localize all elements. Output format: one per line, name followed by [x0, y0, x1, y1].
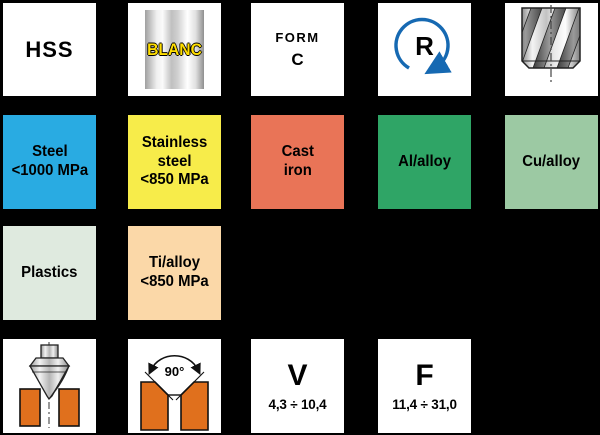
tile-plastics: Plastics [3, 226, 96, 320]
cast-iron-line2: iron [281, 162, 313, 181]
tile-countersinking [3, 339, 96, 433]
tile-rotation-direction: R [378, 3, 471, 96]
stainless-line2: steel [140, 153, 208, 172]
ti-alloy-label: Ti/alloy <850 MPa [140, 254, 208, 292]
ti-alloy-line2: <850 MPa [140, 273, 208, 292]
tile-feed: F 11,4 ÷ 31,0 [378, 339, 471, 433]
chamfer-angle-icon [128, 339, 221, 432]
stainless-label: Stainless steel <850 MPa [140, 134, 208, 191]
rotation-label: R [378, 3, 471, 96]
tile-al-alloy: Al/alloy [378, 115, 471, 209]
cast-iron-line1: Cast [281, 143, 313, 162]
ti-alloy-line1: Ti/alloy [140, 254, 208, 273]
feed-range: 11,4 ÷ 31,0 [392, 397, 457, 412]
steel-line1: Steel [11, 143, 88, 162]
chamfer-90-icon-wrap: 90° [128, 339, 221, 433]
plastics-label: Plastics [21, 264, 77, 283]
twist-drill-icon [505, 3, 598, 96]
blanc-label: BLANC [132, 3, 218, 96]
tile-cutting-speed: V 4,3 ÷ 10,4 [251, 339, 344, 433]
tile-blank-material: BLANC [128, 3, 221, 96]
cutting-speed-range: 4,3 ÷ 10,4 [269, 397, 327, 412]
form-label: FORM [275, 30, 319, 45]
cylinder-blank-icon: BLANC [128, 3, 221, 96]
hss-label: HSS [25, 37, 73, 63]
tile-hss: HSS [3, 3, 96, 96]
tile-ti-alloy: Ti/alloy <850 MPa [128, 226, 221, 320]
tile-cast-iron: Cast iron [251, 115, 344, 209]
al-alloy-label: Al/alloy [398, 153, 451, 172]
tile-drill-type [505, 3, 598, 96]
steel-label: Steel <1000 MPa [11, 143, 88, 181]
stainless-line1: Stainless [140, 134, 208, 153]
tile-stainless-steel: Stainless steel <850 MPa [128, 115, 221, 209]
tile-steel: Steel <1000 MPa [3, 115, 96, 209]
tile-cu-alloy: Cu/alloy [505, 115, 598, 209]
cutting-speed-symbol: V [287, 361, 307, 391]
countersink-tool-icon [3, 339, 96, 432]
chamfer-angle-label: 90° [128, 364, 221, 379]
cast-iron-label: Cast iron [281, 143, 313, 181]
tile-form-c: FORM C [251, 3, 344, 96]
tile-chamfer-angle: 90° [128, 339, 221, 433]
rotation-icon-wrap: R [378, 3, 471, 96]
form-c-label: C [291, 50, 303, 70]
stainless-line3: <850 MPa [140, 171, 208, 190]
feed-symbol: F [415, 361, 433, 391]
steel-line2: <1000 MPa [11, 162, 88, 181]
cu-alloy-label: Cu/alloy [523, 153, 581, 172]
